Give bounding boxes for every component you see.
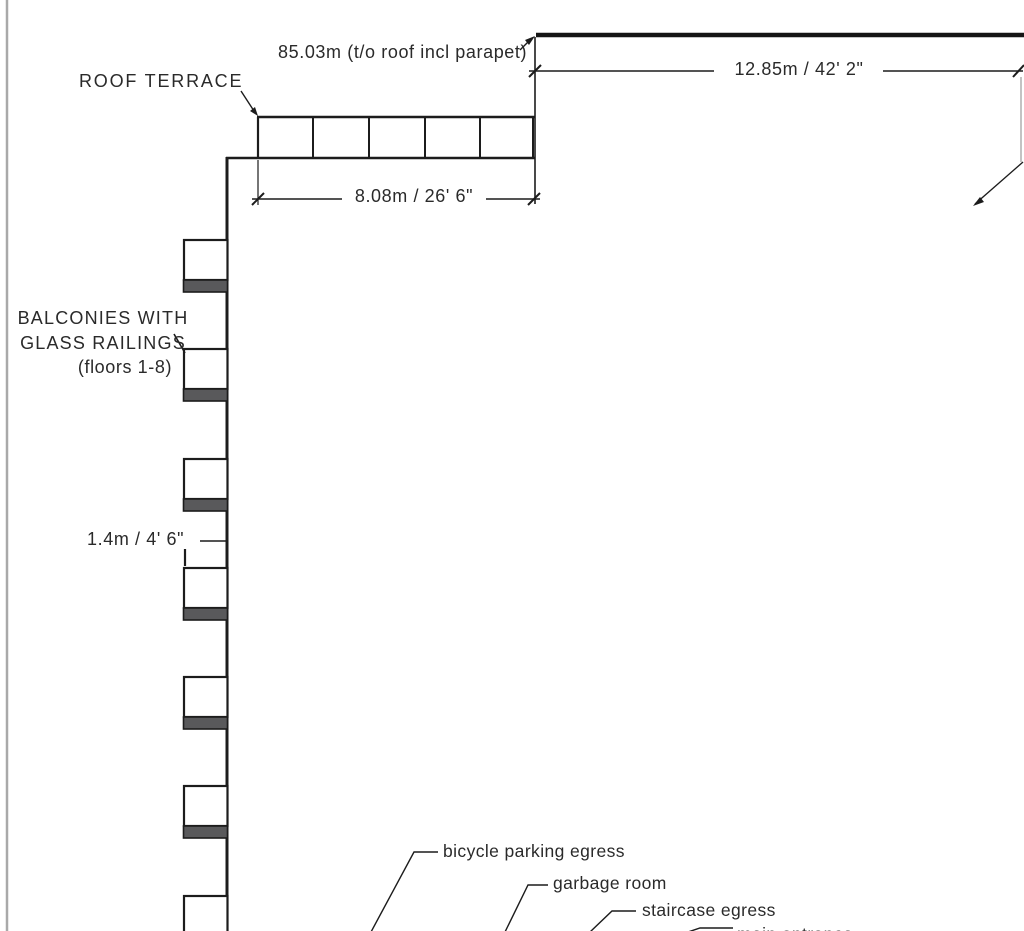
roof-terrace-leader xyxy=(241,91,258,116)
roof-elevation-dimension-label: 85.03m (t/o roof incl parapet) xyxy=(278,42,527,63)
bicycle-leader xyxy=(371,852,438,931)
balconies-label-line2: GLASS RAILINGS xyxy=(6,333,200,354)
balcony-slab xyxy=(184,608,228,620)
balcony xyxy=(184,459,228,511)
balcony xyxy=(184,677,228,729)
garbage-room-label: garbage room xyxy=(553,873,667,894)
balcony-slab xyxy=(184,280,228,292)
balcony-slab xyxy=(184,717,228,729)
balcony xyxy=(184,786,228,838)
balconies-label-line3: (floors 1-8) xyxy=(28,357,222,378)
balconies-label-line1: BALCONIES WITH xyxy=(6,308,200,329)
roof-terrace-label: ROOF TERRACE xyxy=(79,71,243,92)
right-leader-arrow xyxy=(973,77,1023,206)
upper-roof-width-dimension-label: 12.85m / 42' 2" xyxy=(712,59,886,80)
terrace-width-dimension-label: 8.08m / 26' 6" xyxy=(338,186,490,207)
arrowhead xyxy=(250,107,258,116)
balcony xyxy=(184,568,228,620)
elevation-drawing: 85.03m (t/o roof incl parapet) ROOF TERR… xyxy=(0,0,1024,931)
balcony-slab xyxy=(184,499,228,511)
railing-height-dimension-label: 1.4m / 4' 6" xyxy=(87,529,184,550)
drawing-linework xyxy=(0,0,1024,931)
railing-height-leader xyxy=(185,541,228,566)
balcony-slab xyxy=(184,389,228,401)
staircase-egress-label: staircase egress xyxy=(642,900,776,921)
bicycle-parking-egress-label: bicycle parking egress xyxy=(443,841,625,862)
balcony-slab xyxy=(184,826,228,838)
balcony xyxy=(184,240,228,292)
staircase-leader xyxy=(590,911,636,931)
roof-terrace-railing xyxy=(257,117,535,158)
bottom-partial-label: main entrance xyxy=(737,924,853,931)
garbage-leader xyxy=(505,885,548,931)
balcony xyxy=(184,896,228,931)
